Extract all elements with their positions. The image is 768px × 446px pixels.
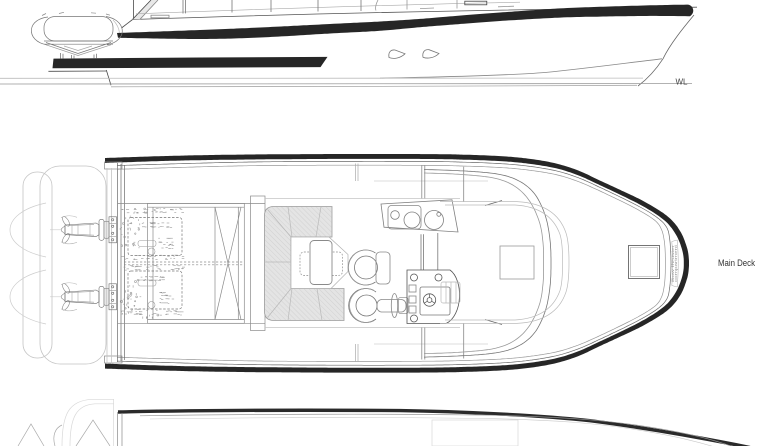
svg-text:compartment: compartment bbox=[674, 245, 678, 282]
svg-text:WL: WL bbox=[676, 78, 689, 87]
svg-text:Main Deck: Main Deck bbox=[718, 258, 756, 268]
